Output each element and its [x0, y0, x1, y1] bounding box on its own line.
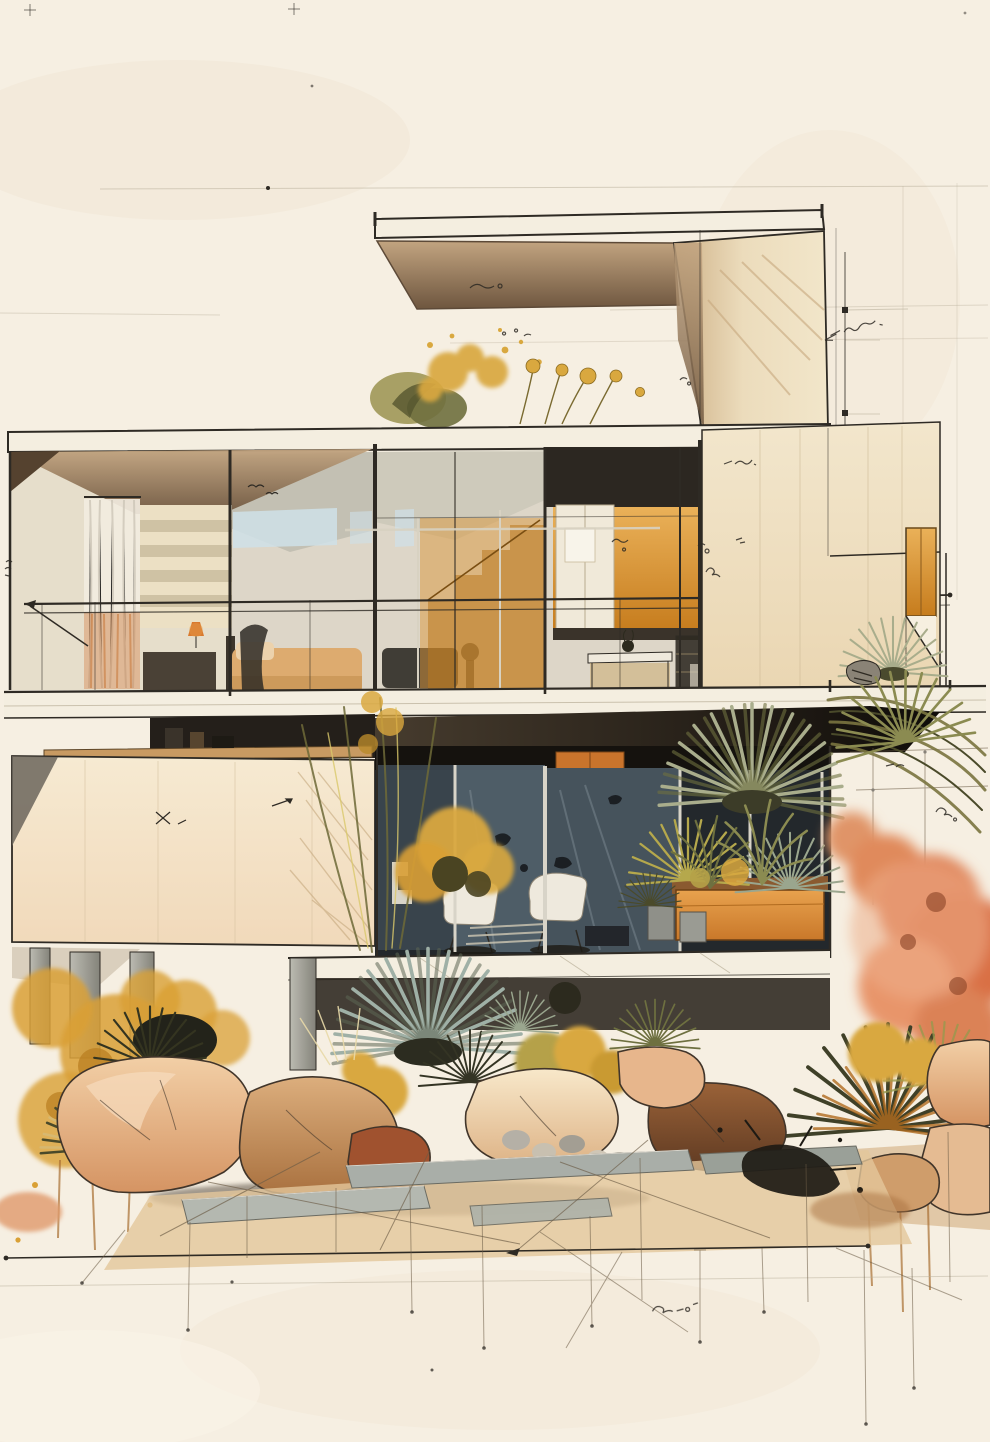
right-wing-wall: [702, 422, 947, 692]
sheer-curtain: [84, 497, 141, 689]
striped-shelf-wall: [140, 505, 232, 628]
architectural-sketch-artwork: Architectural watercolor sketch: [0, 0, 990, 1442]
credenza: [585, 926, 629, 946]
nightstand: [143, 652, 216, 692]
white-cabinet: [556, 505, 614, 630]
